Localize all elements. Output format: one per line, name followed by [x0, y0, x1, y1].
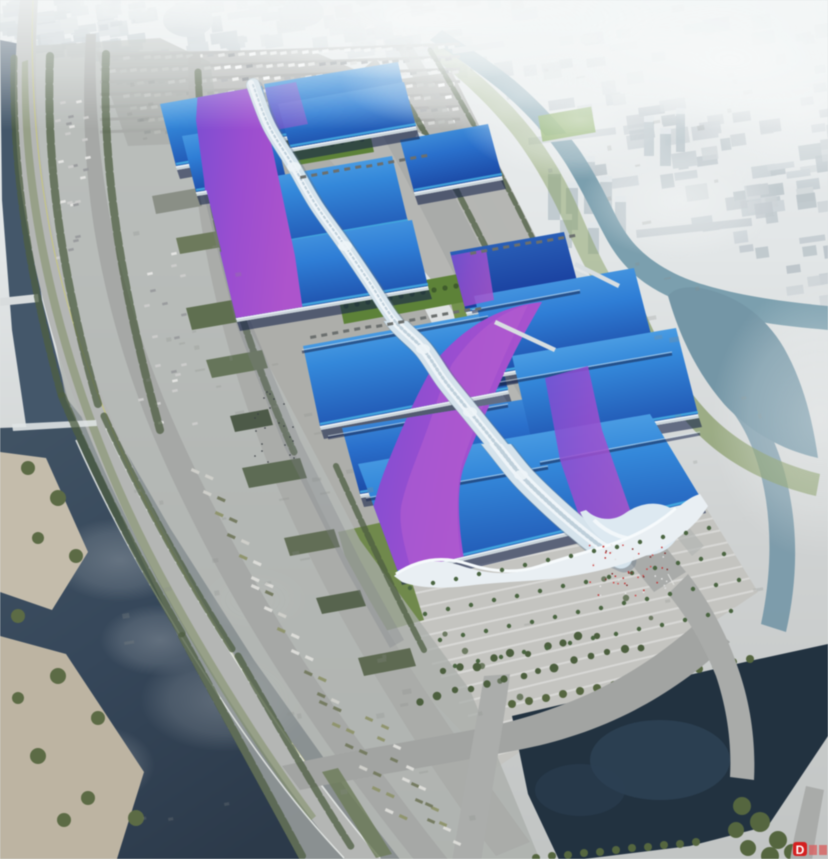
svg-text:D: D: [796, 843, 805, 857]
